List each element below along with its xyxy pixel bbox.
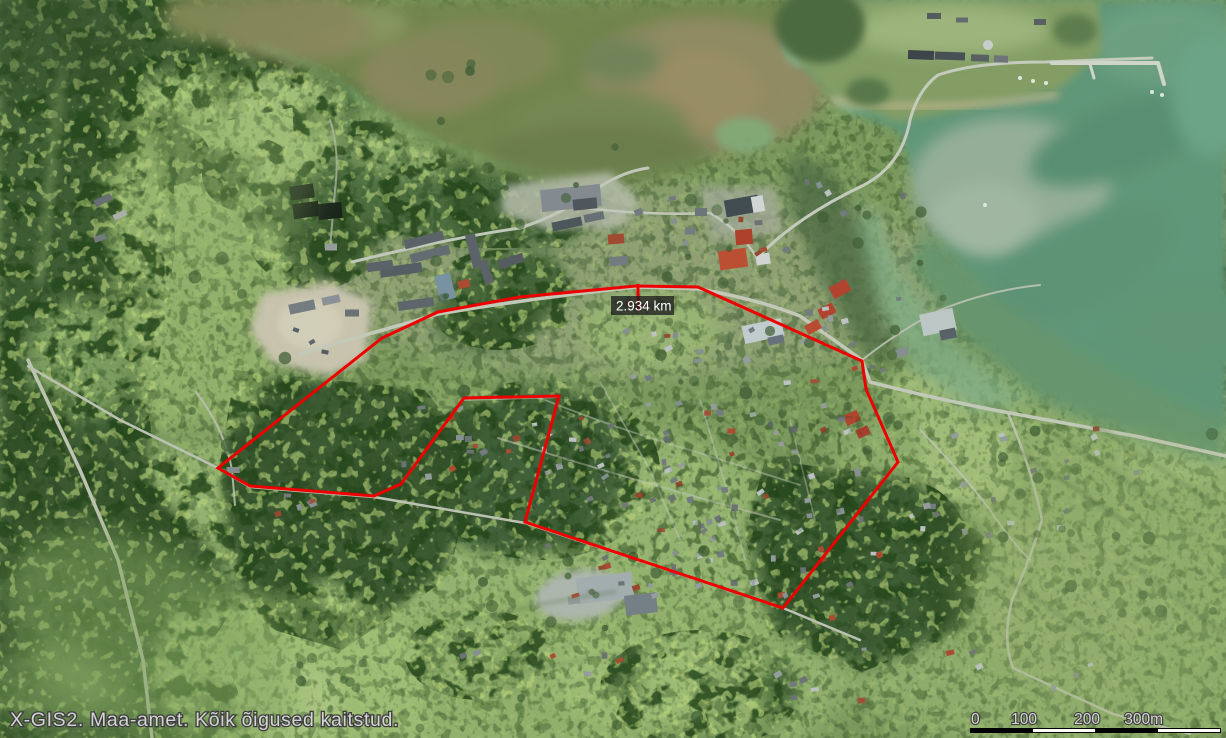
svg-text:300m: 300m bbox=[1124, 711, 1163, 728]
svg-text:2.934 km: 2.934 km bbox=[616, 299, 672, 314]
svg-text:100: 100 bbox=[1011, 711, 1037, 728]
svg-text:200: 200 bbox=[1074, 711, 1100, 728]
svg-text:0: 0 bbox=[971, 711, 980, 728]
svg-text:X-GIS2. Maa-amet. Kõik õigused: X-GIS2. Maa-amet. Kõik õigused kaitstud. bbox=[10, 709, 399, 731]
